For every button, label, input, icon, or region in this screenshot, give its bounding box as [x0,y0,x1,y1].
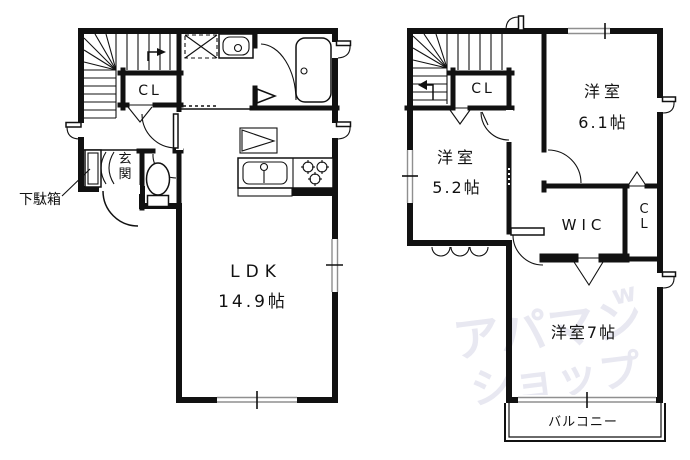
room61-window-gap [568,26,610,37]
room7-door-frame [511,228,544,235]
toilet-bowl [147,163,170,195]
closet2f-label: CL [471,81,495,97]
hallway-top-vent-flap [519,16,524,30]
room7-vent-flap [663,272,676,277]
closet-side-label-char1: C [639,202,648,217]
room52-label: 洋室 [437,148,477,167]
entrance-door-gap [99,185,140,194]
entrance-label-char2: 関 [118,167,131,182]
kitchen-vent-flap [337,122,351,127]
vanity-sink [219,34,253,58]
room52-door-gap [506,110,513,142]
floorplan-image: アパマン ショップ w [0,0,690,460]
room61-label: 洋室 [584,82,624,101]
ldk-label: LDK [230,262,282,282]
wic-label: WIC [562,216,607,234]
balcony-label: バルコニー [548,415,618,430]
closet-side-label-char2: L [640,217,648,232]
room7-label: 洋室7帖 [551,323,617,342]
floorplan-canvas: アパマン ショップ w [0,0,690,460]
counter-end-panel [292,188,335,196]
ldk-door-leaf [174,114,179,148]
entrance-label-char1: 玄 [118,152,131,167]
room61-vent-flap [663,97,676,102]
ldk-area-label: 14.9帖 [218,292,288,312]
hall-vent-flap [66,123,81,128]
room61-area-label: 6.1帖 [578,113,627,132]
shoe-cabinet-label: 下駄箱 [19,192,61,208]
closet1f-label: CL [138,83,162,99]
room52-area-label: 5.2帖 [432,178,481,197]
shoe-cabinet [85,150,101,187]
bath-vent-flap [337,41,351,46]
toilet-tank [148,196,169,207]
